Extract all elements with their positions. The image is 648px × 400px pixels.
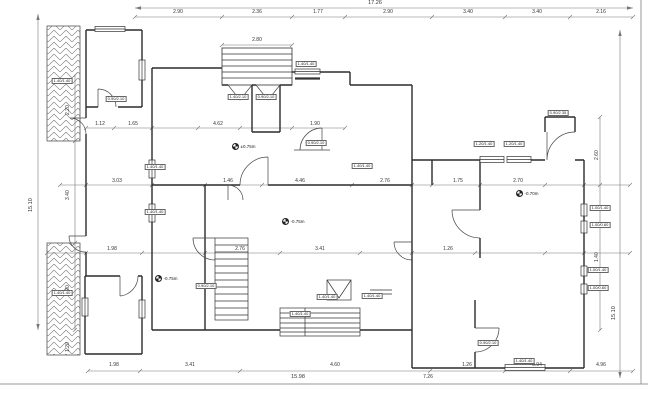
opening-tag: 1.40/1.40 — [145, 209, 166, 215]
sheet-frame — [0, 0, 648, 384]
level-marker-icon — [232, 143, 239, 150]
level-marker-label: -0.70m — [525, 191, 539, 196]
dim-bottom-5: 4.96 — [596, 363, 606, 368]
dim-inner-top-2: 4.62 — [213, 122, 223, 127]
opening-tag: 1.00/1.40 — [588, 267, 609, 273]
opening-tag: 1.40/1.40 — [352, 163, 373, 169]
opening-tag: 0.90/2.10 — [106, 96, 127, 102]
dim-bottom-3: 1.26 — [462, 363, 472, 368]
dim-bottom-1: 3.41 — [185, 363, 195, 368]
dim-inner-mid-2: 4.46 — [295, 179, 305, 184]
dim-inner-low-1: 2.76 — [235, 247, 245, 252]
stairs-top — [222, 48, 292, 85]
opening-tag: 0.90/2.10 — [306, 140, 327, 146]
windows — [82, 27, 587, 371]
level-marker-lower-center: -0.75m — [282, 218, 305, 225]
dim-left-small: 1.20 — [66, 342, 71, 352]
opening-tag: 1.00/0.60 — [588, 285, 609, 291]
opening-tag: 1.40/1.40 — [514, 358, 535, 364]
dim-top-1: 2.36 — [252, 10, 262, 15]
dim-top-0: 2.90 — [173, 10, 183, 15]
dim-bottom-0: 1.98 — [109, 363, 119, 368]
dim-stair: 2.80 — [252, 38, 262, 43]
dim-right-overall: 15.10 — [612, 306, 618, 320]
dim-bottom-overall: 15.98 — [291, 375, 305, 381]
dim-inner-low-3: 1.26 — [443, 247, 453, 252]
dim-inner-low-0: 1.98 — [107, 247, 117, 252]
level-marker-icon — [155, 275, 162, 282]
level-marker-label: ±0.75m — [241, 144, 256, 149]
dim-top-3: 2.90 — [383, 10, 393, 15]
dim-top-4: 3.40 — [463, 10, 473, 15]
floorplan-sheet: 17.26 2.90 2.36 1.77 2.90 3.40 3.40 2.16… — [0, 0, 648, 400]
level-marker-label: -0.75m — [164, 276, 178, 281]
level-marker-label: -0.75m — [291, 219, 305, 224]
level-marker-upper: ±0.75m — [232, 143, 255, 150]
dim-left-overall: 15.10 — [29, 198, 35, 212]
opening-tag: 1.40/1.40 — [145, 164, 166, 170]
opening-tag: 1.20/1.40 — [504, 141, 525, 147]
dim-top-6: 2.16 — [596, 10, 606, 15]
dim-top-overall: 17.26 — [368, 1, 382, 7]
opening-tag: 1.40/1.40 — [317, 294, 338, 300]
dim-right-0: 2.60 — [595, 150, 600, 160]
opening-tag: 0.90/2.10 — [478, 340, 499, 346]
level-marker-left-room: -0.75m — [155, 275, 178, 282]
dim-left-1: 3.40 — [66, 190, 71, 200]
opening-tag: 1.40/1.40 — [52, 78, 73, 84]
opening-tag: 0.90/2.10 — [196, 283, 217, 289]
dim-inner-mid-4: 1.75 — [453, 179, 463, 184]
dim-inner-mid-3: 2.76 — [380, 179, 390, 184]
opening-tag: 0.90/2.35 — [548, 110, 569, 116]
level-marker-right-room: -0.70m — [516, 190, 539, 197]
dim-inner-top-0: 1.12 — [95, 122, 105, 127]
opening-tag: 0.90/2.10 — [256, 94, 277, 100]
level-marker-icon — [282, 218, 289, 225]
opening-tag: 1.40/1.40 — [362, 293, 383, 299]
dim-top-2: 1.77 — [313, 10, 323, 15]
dim-bottom-2: 4.60 — [330, 363, 340, 368]
dim-inner-low-2: 3.41 — [315, 247, 325, 252]
opening-tag: 1.40/1.40 — [296, 61, 317, 67]
opening-tag: 1.40/1.40 — [52, 290, 73, 296]
dimension-arrows — [36, 6, 633, 378]
floorplan-linework — [0, 0, 648, 400]
dim-inner-top-3: 1.90 — [310, 122, 320, 127]
dim-top-5: 3.40 — [532, 10, 542, 15]
dim-inner-mid-0: 3.03 — [112, 179, 122, 184]
level-marker-icon — [516, 190, 523, 197]
dimension-lines — [38, 8, 635, 378]
opening-tag: 1.40/2.10 — [228, 94, 249, 100]
dim-bottom-extra: 7.26 — [423, 375, 433, 380]
opening-tag: 1.40/1.40 — [290, 311, 311, 317]
opening-tag: 1.20/1.40 — [474, 141, 495, 147]
dim-inner-mid-1: 1.46 — [223, 179, 233, 184]
dim-inner-mid-5: 2.70 — [513, 179, 523, 184]
dim-left-0: 2.20 — [66, 105, 71, 115]
walls — [85, 30, 584, 368]
opening-tag: 1.00/0.60 — [590, 222, 611, 228]
opening-tag: 1.00/1.40 — [590, 205, 611, 211]
dim-right-1: 1.40 — [595, 252, 600, 262]
dim-inner-top-1: 1.65 — [128, 122, 138, 127]
